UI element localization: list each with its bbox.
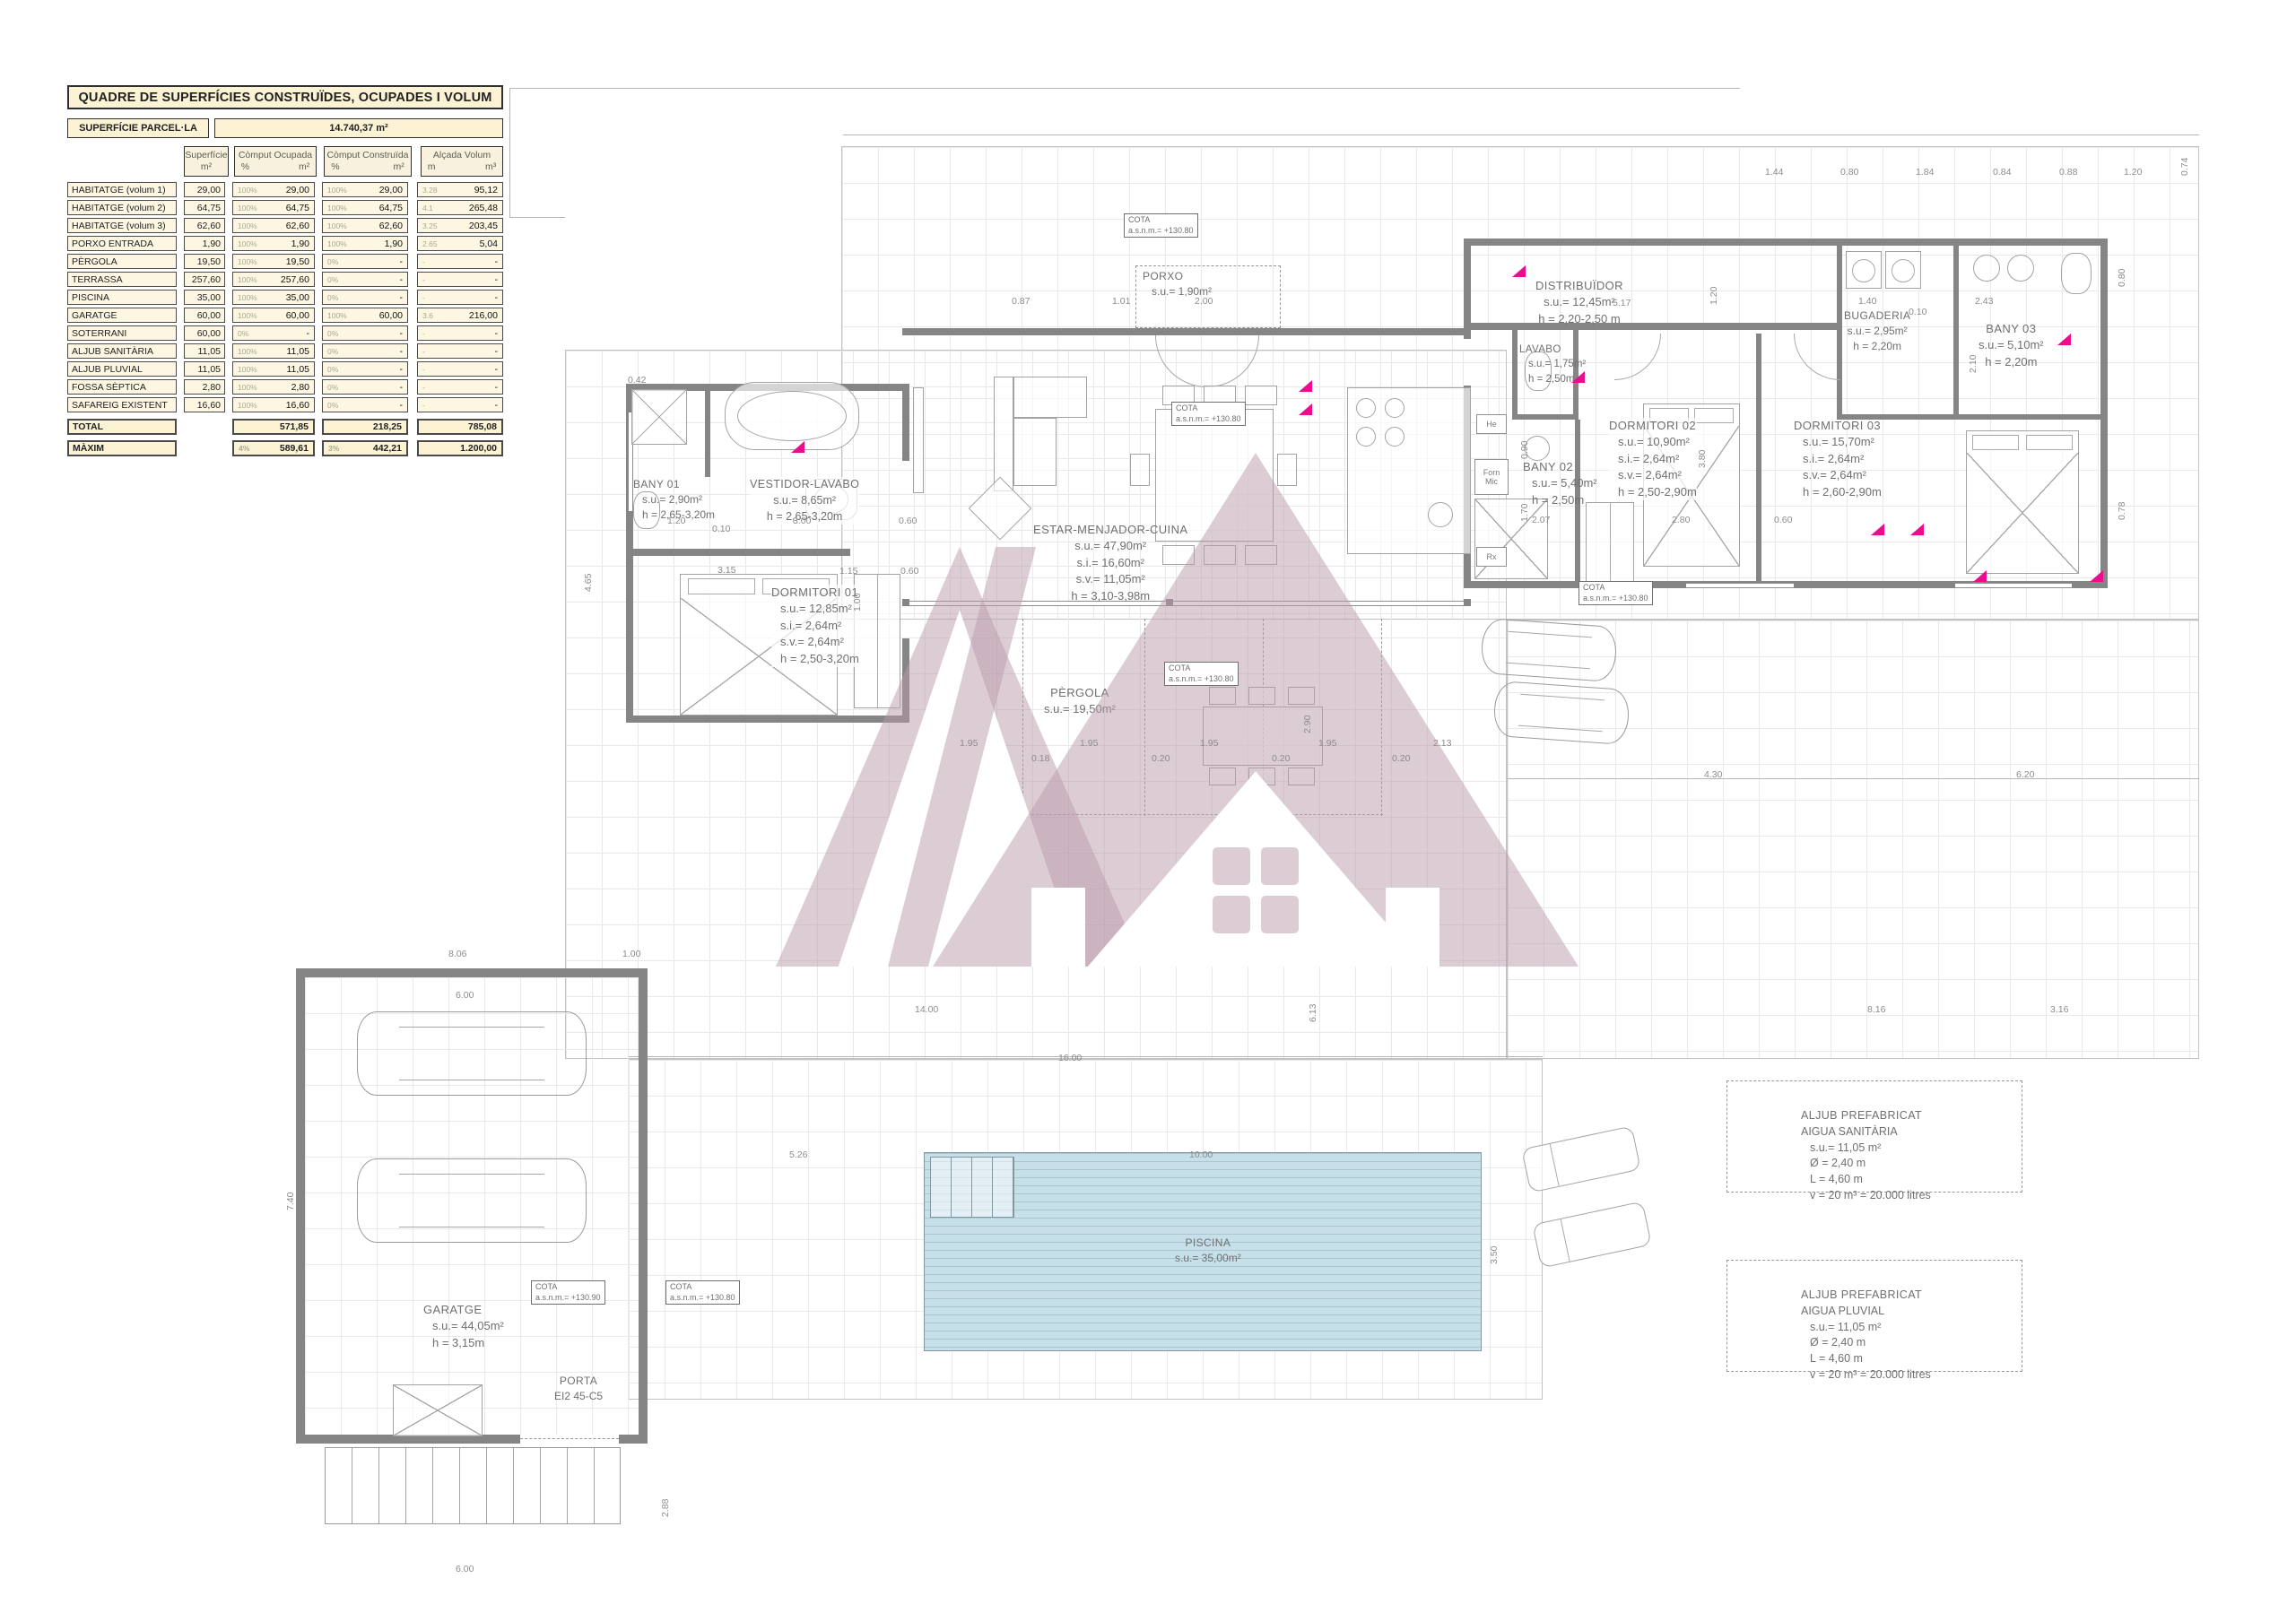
- dimension-label: 5.26: [789, 1149, 807, 1160]
- boundary-line-left: [509, 88, 510, 217]
- watermark-leg-gap-left: [1031, 888, 1085, 967]
- header-superficie: Superfíciem²: [184, 146, 229, 177]
- dimension-label: 1.70: [1519, 504, 1530, 522]
- dimension-label: 2.80: [1672, 515, 1690, 525]
- bathtub-basin: [737, 391, 847, 441]
- table-row: HABITATGE (volum 2)64,75100%64,75100%64,…: [67, 200, 503, 218]
- maxim-ocupada: 4%589,61: [232, 440, 315, 456]
- watermark-window-4: [1261, 896, 1299, 933]
- dimension-label: 0.60: [899, 516, 917, 526]
- tv-unit: [913, 387, 924, 493]
- dimension-label: 4.30: [1704, 769, 1722, 780]
- dimension-label: 0.10: [712, 524, 730, 534]
- door-label-porta: PORTAEI2 45-C5: [554, 1374, 603, 1404]
- dimension-label: 0.78: [2117, 502, 2127, 520]
- sink1-bany03: [1973, 255, 2000, 282]
- dimension-label: 5.17: [1613, 298, 1631, 308]
- watermark-window-1: [1213, 847, 1250, 885]
- washer: [1846, 251, 1882, 289]
- dimension-chain-bottom: [628, 1056, 1543, 1057]
- car-terrace-2: [1492, 681, 1631, 745]
- dimension-label: 0.80: [1840, 167, 1858, 178]
- pool-steps: [930, 1157, 1014, 1218]
- total-ocupada: 571,85: [232, 419, 315, 435]
- dimension-label: 0.60: [1774, 515, 1792, 525]
- table-title: QUADRE DE SUPERFÍCIES CONSTRUÏDES, OCUPA…: [67, 85, 503, 109]
- dimension-label: 0.84: [1993, 167, 2011, 178]
- dimension-label: 1.00: [622, 949, 640, 959]
- table-row: SAFAREIG EXISTENT16,60100%16,600%---: [67, 397, 503, 415]
- header-alcada-volum: Alçada Volum mm³: [421, 146, 503, 177]
- cota-box: COTAa.s.n.m.= +130.90: [531, 1280, 605, 1305]
- dimension-label: 16.00: [1058, 1053, 1082, 1063]
- dimension-label: 1.20: [2124, 167, 2142, 178]
- dimension-label: 1.00: [852, 594, 863, 612]
- dimension-label: 3.50: [1489, 1246, 1500, 1264]
- table-row: SOTERRANI60,000%-0%---: [67, 325, 503, 343]
- room-label-porxo: PORXOs.u.= 1,90m²: [1143, 269, 1212, 299]
- room-label-bugaderia: BUGADERIAs.u.= 2,95m²h = 2,20m: [1844, 308, 1910, 354]
- dimension-label: 0.42: [628, 375, 646, 386]
- kitchen-sink: [1428, 502, 1453, 527]
- header-construida: Còmput Construïda %m²: [324, 146, 412, 177]
- dimension-label: 8.16: [1867, 1004, 1885, 1015]
- dimension-label: 0.88: [2059, 167, 2077, 178]
- dimension-label: 6.00: [456, 990, 474, 1001]
- table-row: PORXO ENTRADA1,90100%1,90100%1,902.655,0…: [67, 236, 503, 254]
- table-row: FOSSA SÈPTICA2,80100%2,800%---: [67, 379, 503, 397]
- dimension-label: 6.20: [2016, 769, 2034, 780]
- appliance-rx: Rx: [1476, 547, 1507, 567]
- table-row: HABITATGE (volum 1)29,00100%29,00100%29,…: [67, 182, 503, 200]
- cota-box: COTAa.s.n.m.= +130.80: [1164, 662, 1239, 686]
- toilet-bany03: [2061, 253, 2092, 294]
- total-label: TOTAL: [67, 419, 177, 435]
- watermark-leg-gap-right: [1386, 888, 1439, 967]
- dimension-label: 2.88: [660, 1499, 671, 1517]
- table-totals: TOTAL 571,85 218,25 785,08 MÀXIM 4%589,6…: [67, 419, 503, 462]
- dimension-label: 0.60: [900, 566, 918, 577]
- sink2-bany03: [2007, 255, 2034, 282]
- dimension-chain-right: [1507, 778, 2199, 779]
- dimension-label: 1.84: [1916, 167, 1934, 178]
- dryer: [1885, 251, 1921, 289]
- right-terrace-slab: [1507, 620, 2199, 1059]
- dimension-label: 1.44: [1765, 167, 1783, 178]
- dimension-label: 0.80: [2117, 269, 2127, 287]
- total-construida: 218,25: [322, 419, 408, 435]
- room-label-piscina: PISCINAs.u.= 35,00m²: [1175, 1236, 1241, 1266]
- shower-bany01: [631, 389, 687, 445]
- dimension-label: 4.65: [583, 574, 594, 592]
- aljub-sanitaria-label: ALJUB PREFABRICAT AIGUA SANITÀRIA s.u.= …: [1801, 1108, 1931, 1204]
- table-row: PÈRGOLA19,50100%19,500%---: [67, 254, 503, 272]
- floor-plan-sheet: QUADRE DE SUPERFÍCIES CONSTRUÏDES, OCUPA…: [0, 0, 2296, 1622]
- room-label-bany02: BANY 02s.u.= 5,40m²h = 2,50m: [1523, 459, 1597, 508]
- room-label-distribuidor: DISTRIBUÏDORs.u.= 12,45m²h = 2,20-2,50 m: [1535, 278, 1623, 327]
- dimension-label: 1.95: [1080, 738, 1098, 749]
- room-label-estar: ESTAR-MENJADOR-CUINAs.u.= 47,90m²s.i.= 1…: [1033, 522, 1187, 604]
- dimension-label: 10.00: [1189, 1149, 1213, 1160]
- dimension-label: 7.40: [285, 1193, 296, 1210]
- sofa-seat: [1013, 377, 1087, 418]
- car-garage-1: [357, 1011, 587, 1096]
- table-row: HABITATGE (volum 3)62,60100%62,60100%62,…: [67, 218, 503, 236]
- room-label-dormitori02: DORMITORI 02s.u.= 10,90m²s.i.= 2,64m²s.v…: [1609, 418, 1697, 500]
- cota-box: COTAa.s.n.m.= +130.80: [665, 1280, 740, 1305]
- table-row: TERRASSA257,60100%257,600%---: [67, 272, 503, 290]
- watermark-window-2: [1261, 847, 1299, 885]
- room-label-bany03: BANY 03s.u.= 5,10m²h = 2,20m: [1979, 321, 2044, 370]
- dimension-label: 8.06: [448, 949, 466, 959]
- bed-dormitori03: [1966, 430, 2079, 574]
- cota-box: COTAa.s.n.m.= +130.80: [1124, 213, 1198, 238]
- aljub-pluvial-label: ALJUB PREFABRICAT AIGUA PLUVIAL s.u.= 11…: [1801, 1288, 1931, 1383]
- dimension-label: 2.00: [1195, 296, 1213, 307]
- sofa-back: [994, 377, 1013, 491]
- dimension-label: 0.20: [1392, 753, 1410, 764]
- parcel-value: 14.740,37 m²: [214, 118, 503, 138]
- room-label-garatge: GARATGEs.u.= 44,05m²h = 3,15m: [423, 1302, 504, 1351]
- table-row: ALJUB SANITÀRIA11,05100%11,050%---: [67, 343, 503, 361]
- dimension-label: 3.00: [793, 516, 811, 526]
- header-ocupada: Còmput Ocupada %m²: [234, 146, 317, 177]
- dimension-label: 0.20: [1272, 753, 1290, 764]
- dimension-label: 0.90: [1519, 441, 1530, 459]
- room-label-dormitori03: DORMITORI 03s.u.= 15,70m²s.i.= 2,64m²s.v…: [1794, 418, 1882, 500]
- cota-box: COTAa.s.n.m.= +130.80: [1171, 402, 1246, 426]
- dimension-label: 1.20: [1709, 287, 1719, 305]
- dimension-label: 0.18: [1031, 753, 1049, 764]
- dimension-label: 14.00: [915, 1004, 938, 1015]
- dimension-label: 6.00: [456, 1564, 474, 1574]
- dimension-label: 0.20: [1152, 753, 1170, 764]
- dimension-label: 3.80: [1697, 450, 1708, 468]
- dimension-label: 1.95: [960, 738, 978, 749]
- sofa-chaise: [1013, 418, 1057, 486]
- dimension-label: 0.74: [2179, 158, 2190, 176]
- cota-box: COTAa.s.n.m.= +130.80: [1578, 581, 1653, 605]
- sun-lounger-2: [1532, 1201, 1652, 1268]
- car-garage-2: [357, 1158, 587, 1243]
- dimension-label: 2.90: [1302, 716, 1313, 733]
- dimension-label: 2.10: [1968, 355, 1979, 373]
- room-label-dormitori01: DORMITORI 01s.u.= 12,85m²s.i.= 2,64m²s.v…: [771, 585, 859, 667]
- table-row: PISCINA35,00100%35,000%---: [67, 290, 503, 308]
- parcel-label: SUPERFÍCIE PARCEL·LA: [67, 118, 209, 138]
- maxim-volum: 1.200,00: [417, 440, 503, 456]
- maxim-label: MÀXIM: [67, 440, 177, 456]
- total-volum: 785,08: [417, 419, 503, 435]
- car-terrace-1: [1480, 618, 1618, 682]
- watermark-window-3: [1213, 896, 1250, 933]
- dimension-label: 2.07: [1532, 515, 1550, 525]
- dimension-label: 3.15: [717, 565, 735, 576]
- maxim-construida: 3%442,21: [322, 440, 408, 456]
- garage-stairs: [325, 1447, 621, 1524]
- table-row: ALJUB PLUVIAL11,05100%11,050%---: [67, 361, 503, 379]
- boundary-line-top: [509, 88, 1740, 89]
- dimension-label: 2.43: [1975, 296, 1993, 307]
- appliance-he: He: [1476, 414, 1507, 434]
- dimension-label: 1.95: [1318, 738, 1336, 749]
- dimension-label: 0.87: [1012, 296, 1030, 307]
- table-rows: HABITATGE (volum 1)29,00100%29,00100%29,…: [67, 182, 503, 415]
- appliance-forn-mic: FornMic: [1474, 459, 1509, 495]
- dimension-chain-top: [843, 134, 2199, 135]
- parcel-row: SUPERFÍCIE PARCEL·LA 14.740,37 m²: [67, 118, 503, 138]
- dimension-label: 2.13: [1433, 738, 1451, 749]
- wardrobe-dormitori02: [1586, 502, 1634, 583]
- dimension-label: 1.95: [1200, 738, 1218, 749]
- dimension-label: 1.20: [667, 516, 685, 526]
- dimension-label: 0.10: [1909, 307, 1926, 317]
- shower-bany02: [1474, 499, 1548, 579]
- areas-summary-table: QUADRE DE SUPERFÍCIES CONSTRUÏDES, OCUPA…: [67, 85, 503, 109]
- dimension-label: 6.13: [1308, 1004, 1318, 1022]
- dimension-label: 1.01: [1112, 296, 1130, 307]
- table-row: GARATGE60,00100%60,00100%60,003.6216,00: [67, 308, 503, 325]
- boundary-line-step: [509, 217, 565, 218]
- dimension-label: 3.16: [2050, 1004, 2068, 1015]
- dimension-label: 1.15: [839, 566, 857, 577]
- garage-void: [393, 1384, 483, 1436]
- table-header-row: Superfíciem² Còmput Ocupada %m² Còmput C…: [67, 146, 503, 177]
- dimension-label: 1.40: [1858, 296, 1876, 307]
